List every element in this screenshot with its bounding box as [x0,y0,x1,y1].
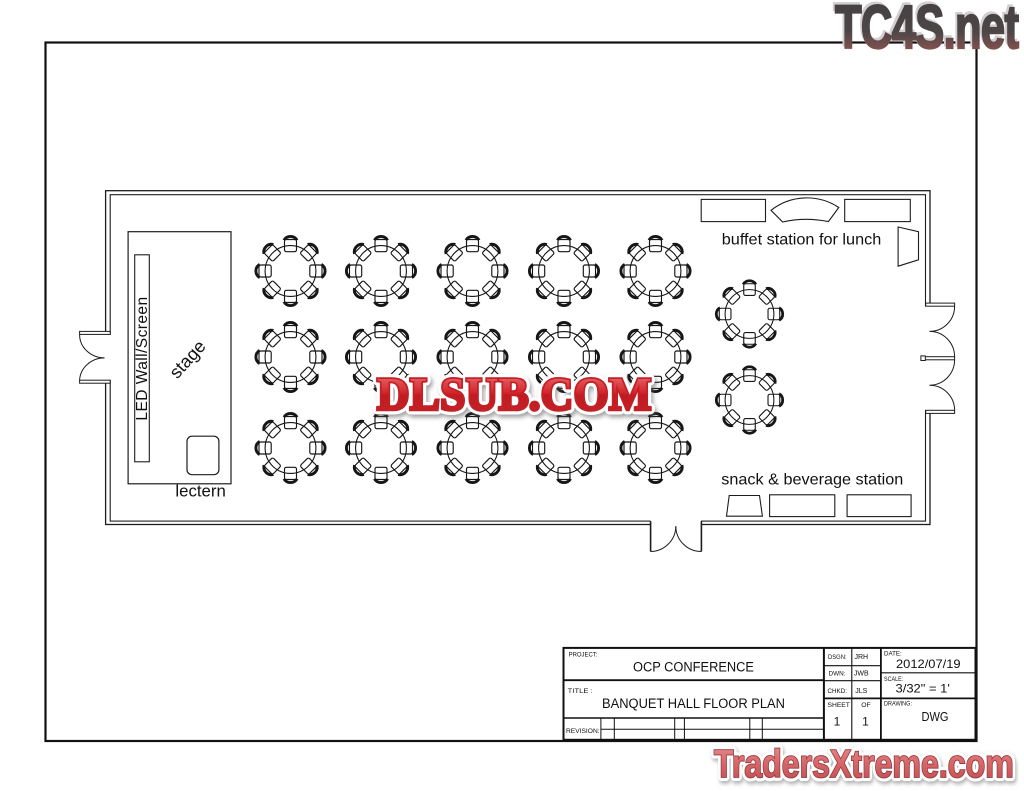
svg-text:REVISION:: REVISION: [566,728,600,735]
svg-text:TITLE :: TITLE : [568,688,593,695]
svg-text:TradersXtreme.com: TradersXtreme.com [714,742,1014,785]
svg-text:JLS: JLS [855,688,867,695]
svg-text:BANQUET HALL FLOOR PLAN: BANQUET HALL FLOOR PLAN [602,696,785,711]
svg-text:JWB: JWB [854,671,869,678]
svg-text:DSGN:: DSGN: [828,654,847,661]
svg-text:DLSUB.COM: DLSUB.COM [377,368,652,420]
svg-text:DRAWING:: DRAWING: [884,701,912,708]
svg-text:DWG: DWG [922,710,949,724]
svg-text:buffet station for lunch: buffet station for lunch [722,231,882,248]
svg-text:OF: OF [861,702,870,709]
svg-text:lectern: lectern [175,482,225,501]
svg-text:LED Wall/Screen: LED Wall/Screen [134,296,151,420]
svg-text:2012/07/19: 2012/07/19 [896,657,961,671]
svg-text:1: 1 [862,715,869,729]
svg-text:TC4S.net: TC4S.net [835,0,1019,62]
svg-text:OCP CONFERENCE: OCP CONFERENCE [633,660,754,675]
svg-text:snack & beverage station: snack & beverage station [721,472,903,489]
svg-text:SHEET: SHEET [828,702,850,709]
svg-text:JRH: JRH [854,654,868,661]
svg-text:DWN:: DWN: [829,671,846,678]
svg-text:CHKD:: CHKD: [828,688,848,695]
svg-text:3/32" = 1': 3/32" = 1' [896,682,950,696]
svg-text:PROJECT:: PROJECT: [569,651,598,658]
svg-text:1: 1 [834,715,841,729]
